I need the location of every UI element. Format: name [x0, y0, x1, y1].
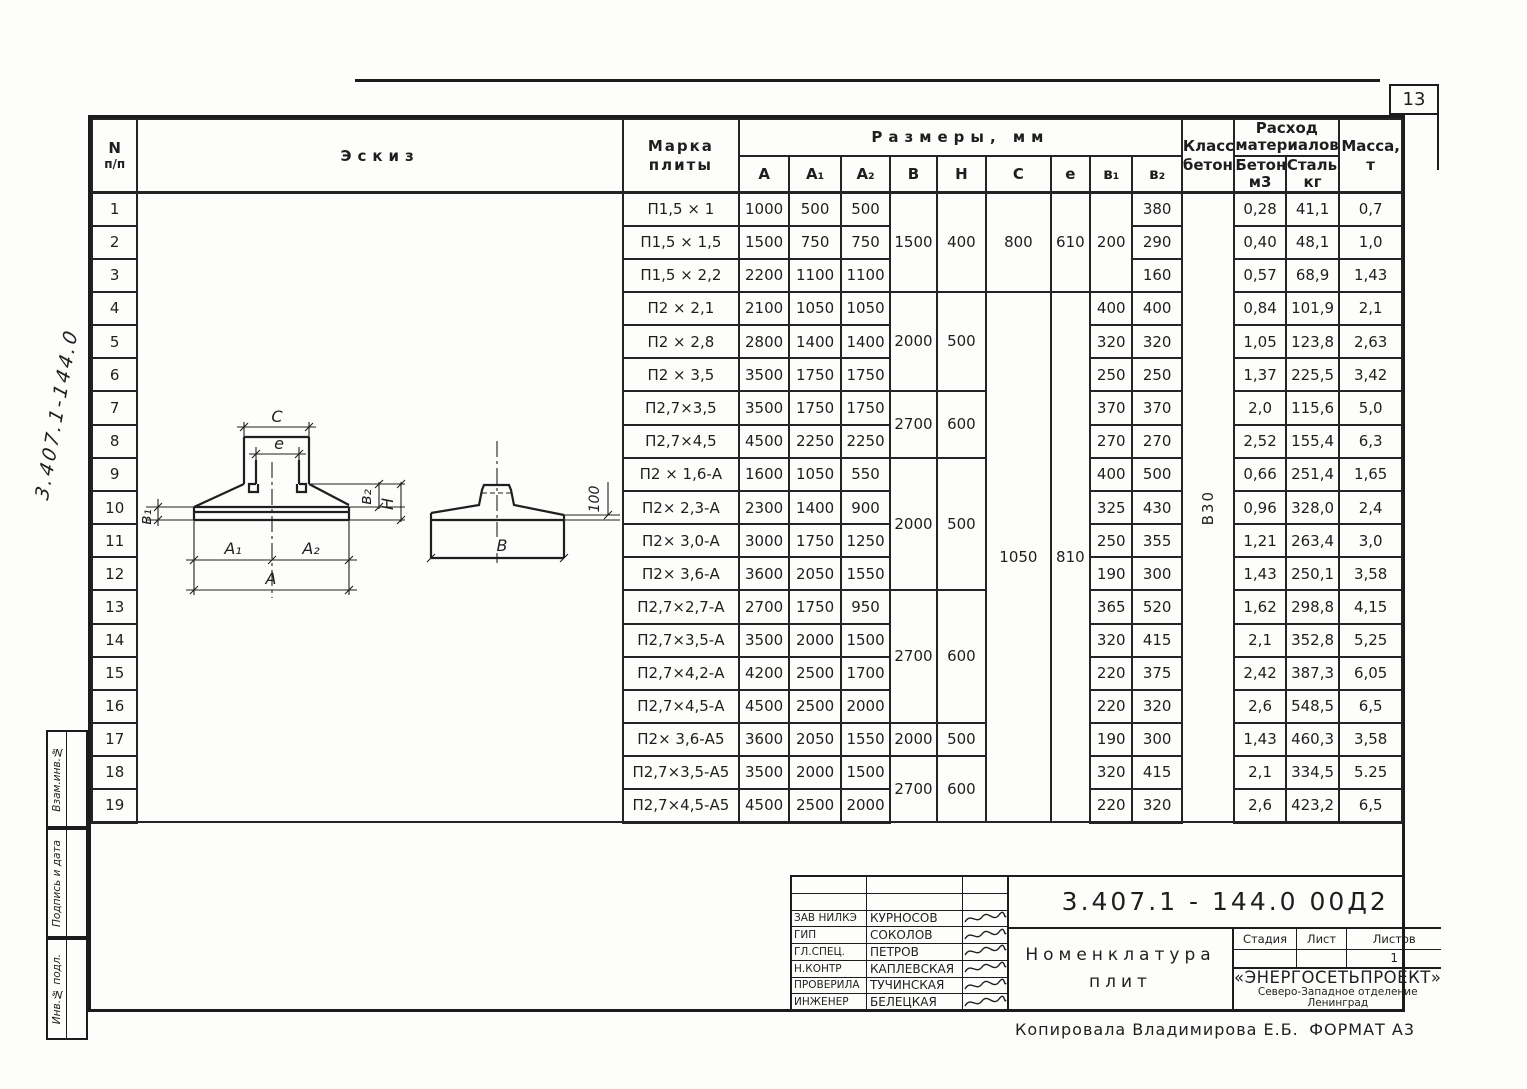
bottom-caption: Копировала Владимирова Е.Б. ФОРМАТ А3: [1015, 1020, 1415, 1039]
dim-value: 1750: [841, 358, 890, 391]
plate-mark: П2 × 2,1: [623, 292, 739, 326]
concrete-volume: 2,52: [1234, 425, 1285, 458]
dim-value: 1000: [739, 193, 789, 226]
signature-row: Зав НИЛКЭКурносов: [792, 911, 1007, 928]
plate-mark: П2× 3,6-А: [623, 557, 739, 590]
dim-value: 415: [1132, 756, 1181, 790]
row-number: 8: [92, 425, 137, 458]
concrete-volume: 0,40: [1234, 226, 1285, 259]
signature: [963, 911, 1007, 927]
signer-name: Каплевская: [867, 961, 963, 977]
row-number: 9: [92, 458, 137, 492]
dim-value: 270: [1090, 425, 1132, 458]
title-block-right: 3.407.1 - 144.0 00Д2 Номенклатура плит С…: [1009, 877, 1441, 1010]
stamp-cell-vzam: Взам.инв.№: [46, 730, 88, 828]
copied-by: Копировала Владимирова Е.Б.: [1015, 1020, 1299, 1039]
steel-mass: 328,0: [1286, 491, 1339, 524]
signature-row-empty: [792, 894, 1007, 911]
dim-value: 2000: [890, 292, 936, 392]
table-header: Nп/п Эскиз Маркаплиты Размеры, мм Классб…: [92, 119, 1402, 193]
dim-value: 1400: [789, 491, 840, 524]
header-num: Nп/п: [92, 119, 137, 193]
signature-row: Гл.спец.Петров: [792, 944, 1007, 961]
concrete-volume: 2,1: [1234, 624, 1285, 657]
plate-mark: П1,5 × 1: [623, 193, 739, 226]
organization-name: «ЭНЕРГОСЕТЬПРОЕКТ»: [1234, 969, 1441, 987]
plate-mark: П2× 2,3-А: [623, 491, 739, 524]
top-rule: [355, 79, 1380, 82]
steel-mass: 123,8: [1286, 325, 1339, 358]
dim-value: 270: [1132, 425, 1181, 458]
stage-label: Стадия: [1234, 929, 1297, 949]
signature: [963, 961, 1007, 977]
dim-value: 320: [1090, 325, 1132, 358]
dim-value: 500: [937, 723, 986, 756]
dim-value: 3600: [739, 723, 789, 756]
row-number: 17: [92, 723, 137, 756]
dim-value: 3500: [739, 358, 789, 391]
dim-label-100: 100: [587, 486, 603, 513]
stamp-label-inv: Инв.№ подл.: [48, 940, 67, 1038]
dim-value: 380: [1132, 193, 1181, 226]
dim-value: 2500: [789, 690, 840, 723]
plate-mass: 6,5: [1339, 789, 1402, 822]
dim-value: 500: [841, 193, 890, 226]
dim-value: 2000: [890, 458, 936, 591]
stage-sheet-header: Стадия Лист Листов: [1234, 929, 1441, 950]
header-steel: Сталь, кг: [1286, 156, 1339, 193]
page-number-box: 13: [1389, 84, 1439, 115]
signature-row: ПроверилаТучинская: [792, 978, 1007, 995]
row-number: 11: [92, 524, 137, 557]
concrete-volume: 1,37: [1234, 358, 1285, 391]
dim-value: 2700: [890, 391, 936, 458]
concrete-volume: 1,43: [1234, 557, 1285, 590]
signer-role: ГИП: [792, 927, 867, 943]
stage-sheet-values: 1: [1234, 950, 1441, 969]
header-dim-a1: А₁: [789, 156, 840, 193]
dim-value: 3000: [739, 524, 789, 557]
stamp-cell-podpis: Подпись и дата: [46, 828, 88, 938]
dim-label-a1: А₁: [223, 539, 241, 558]
concrete-volume: 0,28: [1234, 193, 1285, 226]
concrete-volume: 2,42: [1234, 657, 1285, 690]
plate-mass: 5,25: [1339, 624, 1402, 657]
row-number: 19: [92, 789, 137, 822]
stage-value: [1234, 950, 1297, 967]
dim-label-a: А: [264, 569, 276, 588]
dim-value: 1050: [841, 292, 890, 326]
margin-doc-number: 3.407.1-144.0: [30, 317, 84, 511]
signer-role: Н.контр: [792, 961, 867, 977]
dim-value: 2700: [739, 590, 789, 624]
dim-value: 320: [1132, 789, 1181, 822]
dim-value: 3500: [739, 756, 789, 790]
dim-value: 2000: [890, 723, 936, 756]
plate-mass: 6,05: [1339, 657, 1402, 690]
document-number: 3.407.1 - 144.0 00Д2: [1009, 877, 1441, 929]
dim-value: 800: [986, 193, 1051, 292]
dim-value: 1750: [841, 391, 890, 425]
row-number: 15: [92, 657, 137, 690]
plate-mass: 2,1: [1339, 292, 1402, 326]
plate-mark: П1,5 × 2,2: [623, 259, 739, 292]
dim-value: 500: [789, 193, 840, 226]
dim-value: 250: [1090, 358, 1132, 391]
signer-name: Белецкая: [867, 994, 963, 1010]
dim-value: 2000: [841, 690, 890, 723]
steel-mass: 387,3: [1286, 657, 1339, 690]
dim-value: 4500: [739, 690, 789, 723]
page-number: 13: [1403, 89, 1426, 110]
dim-value: 250: [1090, 524, 1132, 557]
format-label: ФОРМАТ А3: [1309, 1020, 1415, 1039]
dim-value: 4200: [739, 657, 789, 690]
dim-value: 2500: [789, 789, 840, 822]
dim-value: 375: [1132, 657, 1181, 690]
plate-mark: П2,7×4,5-А5: [623, 789, 739, 822]
header-material-consumption: Расходматериалов: [1234, 119, 1339, 156]
signer-name: Тучинская: [867, 978, 963, 994]
dim-value: 550: [841, 458, 890, 492]
dim-value: 320: [1090, 624, 1132, 657]
dim-value: 400: [937, 193, 986, 292]
plate-mass: 3,0: [1339, 524, 1402, 557]
header-eskiz: Эскиз: [137, 119, 622, 193]
signature-row: Н.контрКаплевская: [792, 961, 1007, 978]
row-number: 6: [92, 358, 137, 391]
concrete-volume: 1,43: [1234, 723, 1285, 756]
steel-mass: 460,3: [1286, 723, 1339, 756]
row-number: 18: [92, 756, 137, 790]
plate-mass: 0,7: [1339, 193, 1402, 226]
signer-name: Курносов: [867, 911, 963, 927]
steel-mass: 548,5: [1286, 690, 1339, 723]
steel-mass: 352,8: [1286, 624, 1339, 657]
steel-mass: 298,8: [1286, 590, 1339, 624]
plate-table-body: 1 С е в₁ в₂ Н А₁ А₂ А: [92, 193, 1402, 823]
dim-label-b: В: [496, 536, 507, 555]
dim-value: 2100: [739, 292, 789, 326]
plate-mass: 6,5: [1339, 690, 1402, 723]
dim-value: 500: [937, 458, 986, 591]
dim-value: 750: [789, 226, 840, 259]
dim-value: 950: [841, 590, 890, 624]
row-number: 5: [92, 325, 137, 358]
dim-value: 1100: [789, 259, 840, 292]
dim-value: 2800: [739, 325, 789, 358]
plate-mass: 3,58: [1339, 557, 1402, 590]
signer-role: Зав НИЛКЭ: [792, 911, 867, 927]
plate-mark: П2,7×4,5: [623, 425, 739, 458]
plate-mark: П2,7×3,5-А5: [623, 756, 739, 790]
dim-value: 600: [937, 756, 986, 823]
plate-mass: 1,0: [1339, 226, 1402, 259]
steel-mass: 334,5: [1286, 756, 1339, 790]
dim-value: 1100: [841, 259, 890, 292]
row-number: 3: [92, 259, 137, 292]
dim-label-c: С: [271, 407, 283, 426]
dim-value: 1050: [789, 292, 840, 326]
signature-row-empty: [792, 877, 1007, 894]
steel-mass: 115,6: [1286, 391, 1339, 425]
concrete-volume: 0,84: [1234, 292, 1285, 326]
dim-value: 1050: [789, 458, 840, 492]
dim-value: 600: [937, 391, 986, 458]
dim-value: 2050: [789, 557, 840, 590]
header-dim-b: В: [890, 156, 936, 193]
header-sizes: Размеры, мм: [739, 119, 1182, 156]
nomenclature-table: Nп/п Эскиз Маркаплиты Размеры, мм Классб…: [91, 118, 1403, 824]
dim-value: 2000: [789, 756, 840, 790]
signature-row: ГИПСоколов: [792, 927, 1007, 944]
signer-name: Петров: [867, 944, 963, 960]
steel-mass: 68,9: [1286, 259, 1339, 292]
title-block: Зав НИЛКЭКурносовГИПСоколовГл.спец.Петро…: [790, 875, 1405, 1012]
row-number: 7: [92, 391, 137, 425]
plate-mass: 4,15: [1339, 590, 1402, 624]
dim-value: 1750: [789, 590, 840, 624]
dim-value: 810: [1051, 292, 1090, 823]
dim-value: 2700: [890, 756, 936, 823]
sheets-value: 1: [1347, 950, 1441, 967]
plate-mass: 6,3: [1339, 425, 1402, 458]
dim-value: 300: [1132, 557, 1181, 590]
header-concrete-class: Классбетона: [1182, 119, 1234, 193]
concrete-volume: 0,57: [1234, 259, 1285, 292]
dim-value: 1750: [789, 358, 840, 391]
dim-value: 610: [1051, 193, 1090, 292]
dim-value: 1500: [841, 756, 890, 790]
organization: «ЭНЕРГОСЕТЬПРОЕКТ» Северо-Западное отдел…: [1234, 969, 1441, 1010]
dim-value: 290: [1132, 226, 1181, 259]
signature: [963, 944, 1007, 960]
plate-mark: П2,7×4,5-А: [623, 690, 739, 723]
signature-table: Зав НИЛКЭКурносовГИПСоколовГл.спец.Петро…: [792, 877, 1009, 1010]
dim-value: 1500: [739, 226, 789, 259]
header-mass: Масса,т: [1339, 119, 1402, 193]
plate-mark: П2,7×2,7-А: [623, 590, 739, 624]
dim-value: 520: [1132, 590, 1181, 624]
dim-value: 160: [1132, 259, 1181, 292]
dim-value: 500: [937, 292, 986, 392]
concrete-class-cell: В30: [1182, 193, 1234, 823]
frame-tail-line: [1437, 113, 1439, 170]
dim-value: 1750: [789, 524, 840, 557]
dim-value: 2000: [841, 789, 890, 822]
concrete-volume: 2,1: [1234, 756, 1285, 790]
plate-mark: П2,7×3,5-А: [623, 624, 739, 657]
dim-value: 370: [1132, 391, 1181, 425]
dim-value: 320: [1090, 756, 1132, 790]
dim-value: 1500: [890, 193, 936, 292]
signature: [963, 927, 1007, 943]
stamp-cell-inv: Инв.№ подл.: [46, 938, 88, 1040]
plate-mass: 5,0: [1339, 391, 1402, 425]
plate-mass: 5.25: [1339, 756, 1402, 790]
dim-label-a2: А₂: [301, 539, 320, 558]
steel-mass: 225,5: [1286, 358, 1339, 391]
row-number: 16: [92, 690, 137, 723]
plate-sketch: С е в₁ в₂ Н А₁ А₂ А В 100: [141, 194, 620, 817]
dim-value: 300: [1132, 723, 1181, 756]
header-dim-e: е: [1051, 156, 1090, 193]
concrete-volume: 2,6: [1234, 789, 1285, 822]
dim-value: 4500: [739, 425, 789, 458]
plate-mass: 3,58: [1339, 723, 1402, 756]
steel-mass: 41,1: [1286, 193, 1339, 226]
dim-value: 250: [1132, 358, 1181, 391]
dim-label-h: Н: [378, 498, 397, 510]
sheet-value: [1297, 950, 1347, 967]
dim-value: 190: [1090, 557, 1132, 590]
plate-mass: 2,63: [1339, 325, 1402, 358]
steel-mass: 263,4: [1286, 524, 1339, 557]
dim-value: 2500: [789, 657, 840, 690]
dim-value: 2700: [890, 590, 936, 723]
socket-notches: [249, 484, 306, 492]
signature: [963, 978, 1007, 994]
concrete-volume: 2,0: [1234, 391, 1285, 425]
header-dim-h: Н: [937, 156, 986, 193]
concrete-volume: 2,6: [1234, 690, 1285, 723]
stamp-label-podpis: Подпись и дата: [48, 830, 67, 936]
header-dim-a2: А₂: [841, 156, 890, 193]
header-dim-a: А: [739, 156, 789, 193]
dim-value: 200: [1090, 193, 1132, 292]
plate-mass: 3,42: [1339, 358, 1402, 391]
dim-value: 355: [1132, 524, 1181, 557]
steel-mass: 155,4: [1286, 425, 1339, 458]
dim-value: 600: [937, 590, 986, 723]
dim-value: 1250: [841, 524, 890, 557]
dim-value: 220: [1090, 690, 1132, 723]
plate-mass: 1,65: [1339, 458, 1402, 492]
dim-value: 2250: [789, 425, 840, 458]
dim-value: 1550: [841, 723, 890, 756]
signature-row: ИнженерБелецкая: [792, 994, 1007, 1010]
row-number: 2: [92, 226, 137, 259]
dim-label-b2: в₂: [356, 488, 375, 504]
scanned-drawing-page: 13 3.407.1-144.0 Взам.инв.№ Подпись и да…: [0, 0, 1527, 1089]
concrete-volume: 0,66: [1234, 458, 1285, 492]
dim-value: 1700: [841, 657, 890, 690]
concrete-volume: 0,96: [1234, 491, 1285, 524]
plate-mass: 1,43: [1339, 259, 1402, 292]
concrete-volume: 1,05: [1234, 325, 1285, 358]
row-number: 12: [92, 557, 137, 590]
sheet-label: Лист: [1297, 929, 1347, 949]
dim-value: 320: [1132, 690, 1181, 723]
row-number: 14: [92, 624, 137, 657]
dim-value: 750: [841, 226, 890, 259]
row-number: 4: [92, 292, 137, 326]
signer-name: Соколов: [867, 927, 963, 943]
signer-role: Инженер: [792, 994, 867, 1010]
dim-value: 400: [1090, 292, 1132, 326]
drawing-title: Номенклатура плит: [1009, 929, 1234, 1010]
steel-mass: 250,1: [1286, 557, 1339, 590]
concrete-class: В30: [1199, 490, 1217, 525]
row-number: 1: [92, 193, 137, 226]
header-dim-c: С: [986, 156, 1051, 193]
dim-value: 1050: [986, 292, 1051, 823]
plate-mark: П2,7×3,5: [623, 391, 739, 425]
dim-value: 2250: [841, 425, 890, 458]
dim-value: 1500: [841, 624, 890, 657]
concrete-volume: 1,21: [1234, 524, 1285, 557]
dim-value: 1400: [841, 325, 890, 358]
signer-role: Гл.спец.: [792, 944, 867, 960]
header-dim-v1: в₁: [1090, 156, 1132, 193]
plate-mark: П2× 3,6-А5: [623, 723, 739, 756]
left-section-outline: [194, 437, 349, 520]
dim-value: 415: [1132, 624, 1181, 657]
plate-mark: П2 × 1,6-А: [623, 458, 739, 492]
plate-mark: П2,7×4,2-А: [623, 657, 739, 690]
dim-value: 2200: [739, 259, 789, 292]
header-mark: Маркаплиты: [623, 119, 739, 193]
dim-value: 400: [1132, 292, 1181, 326]
sheets-label: Листов: [1347, 929, 1441, 949]
dim-value: 1750: [789, 391, 840, 425]
steel-mass: 251,4: [1286, 458, 1339, 492]
dim-value: 220: [1090, 789, 1132, 822]
plate-mass: 2,4: [1339, 491, 1402, 524]
drawing-frame: Nп/п Эскиз Маркаплиты Размеры, мм Классб…: [88, 115, 1405, 1012]
dim-value: 370: [1090, 391, 1132, 425]
stamp-label-vzam: Взам.инв.№: [48, 732, 67, 826]
dim-value: 1550: [841, 557, 890, 590]
steel-mass: 48,1: [1286, 226, 1339, 259]
dim-label-b1: в₁: [141, 509, 155, 525]
steel-mass: 101,9: [1286, 292, 1339, 326]
steel-mass: 423,2: [1286, 789, 1339, 822]
dim-value: 365: [1090, 590, 1132, 624]
plate-mark: П2 × 2,8: [623, 325, 739, 358]
dim-value: 3500: [739, 624, 789, 657]
dim-value: 500: [1132, 458, 1181, 492]
dim-value: 3600: [739, 557, 789, 590]
dim-value: 400: [1090, 458, 1132, 492]
dim-value: 325: [1090, 491, 1132, 524]
dim-label-e: е: [274, 434, 284, 453]
dim-value: 320: [1132, 325, 1181, 358]
table-row: 1 С е в₁ в₂ Н А₁ А₂ А: [92, 193, 1402, 226]
signature: [963, 994, 1007, 1010]
header-concrete: Бетон, м3: [1234, 156, 1285, 193]
header-dim-v2: в₂: [1132, 156, 1181, 193]
sketch-cell: С е в₁ в₂ Н А₁ А₂ А В 100: [137, 193, 622, 823]
organization-city: Ленинград: [1307, 998, 1368, 1010]
plate-mark: П2× 3,0-А: [623, 524, 739, 557]
dim-value: 2300: [739, 491, 789, 524]
concrete-volume: 1,62: [1234, 590, 1285, 624]
dim-value: 1600: [739, 458, 789, 492]
plate-mark: П1,5 × 1,5: [623, 226, 739, 259]
dim-value: 2050: [789, 723, 840, 756]
dim-value: 4500: [739, 789, 789, 822]
plate-mark: П2 × 3,5: [623, 358, 739, 391]
row-number: 10: [92, 491, 137, 524]
dim-value: 2000: [789, 624, 840, 657]
dim-value: 900: [841, 491, 890, 524]
dim-value: 220: [1090, 657, 1132, 690]
dim-value: 430: [1132, 491, 1181, 524]
dim-value: 190: [1090, 723, 1132, 756]
dim-value: 3500: [739, 391, 789, 425]
row-number: 13: [92, 590, 137, 624]
